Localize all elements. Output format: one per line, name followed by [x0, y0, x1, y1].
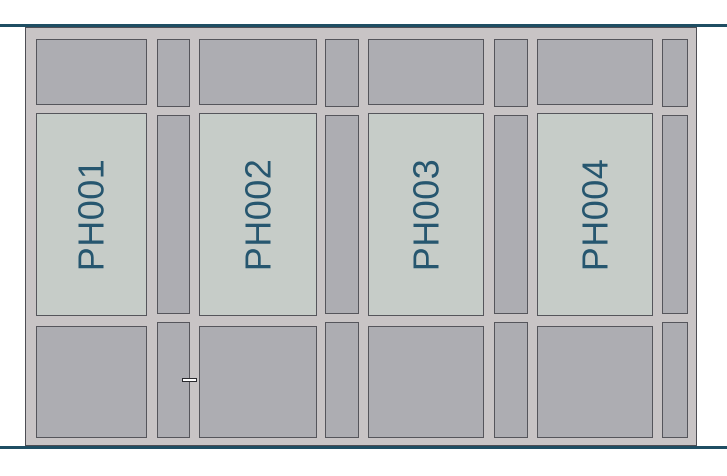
door-stile-3	[494, 39, 528, 438]
stile-top-panel	[325, 39, 359, 107]
glass-panel-ph002: PH002	[199, 113, 317, 316]
panel-label-ph002: PH002	[237, 158, 279, 271]
bottom-solid-panel	[368, 326, 484, 438]
bottom-solid-panel	[199, 326, 317, 438]
partition-elevation-drawing: PH001 PH002 PH003	[0, 0, 727, 476]
stile-top-panel	[662, 39, 688, 107]
stile-mid-panel	[662, 115, 688, 314]
bottom-solid-panel	[36, 326, 147, 438]
stile-top-panel	[494, 39, 528, 107]
glass-panel-ph003: PH003	[368, 113, 484, 316]
glass-panel-ph001: PH001	[36, 113, 147, 316]
panel-label-ph004: PH004	[574, 158, 616, 271]
top-solid-panel	[36, 39, 147, 105]
stile-bottom-panel	[494, 322, 528, 438]
top-solid-panel	[368, 39, 484, 105]
panel-unit-ph001: PH001	[36, 39, 147, 438]
panel-label-ph001: PH001	[71, 158, 113, 271]
bottom-accent-line	[0, 446, 727, 449]
stile-mid-panel	[157, 115, 190, 314]
top-solid-panel	[199, 39, 317, 105]
panel-label-ph003: PH003	[405, 158, 447, 271]
panel-unit-ph004: PH004	[537, 39, 653, 438]
stile-top-panel	[157, 39, 190, 107]
top-solid-panel	[537, 39, 653, 105]
stile-mid-panel	[494, 115, 528, 314]
door-stile-2	[325, 39, 359, 438]
stile-bottom-panel	[662, 322, 688, 438]
glass-panel-ph004: PH004	[537, 113, 653, 316]
bottom-solid-panel	[537, 326, 653, 438]
stile-mid-panel	[325, 115, 359, 314]
panel-unit-ph002: PH002	[199, 39, 317, 438]
door-handle-icon	[182, 378, 197, 382]
panel-unit-ph003: PH003	[368, 39, 484, 438]
door-stile-4	[662, 39, 688, 438]
stile-bottom-panel	[325, 322, 359, 438]
